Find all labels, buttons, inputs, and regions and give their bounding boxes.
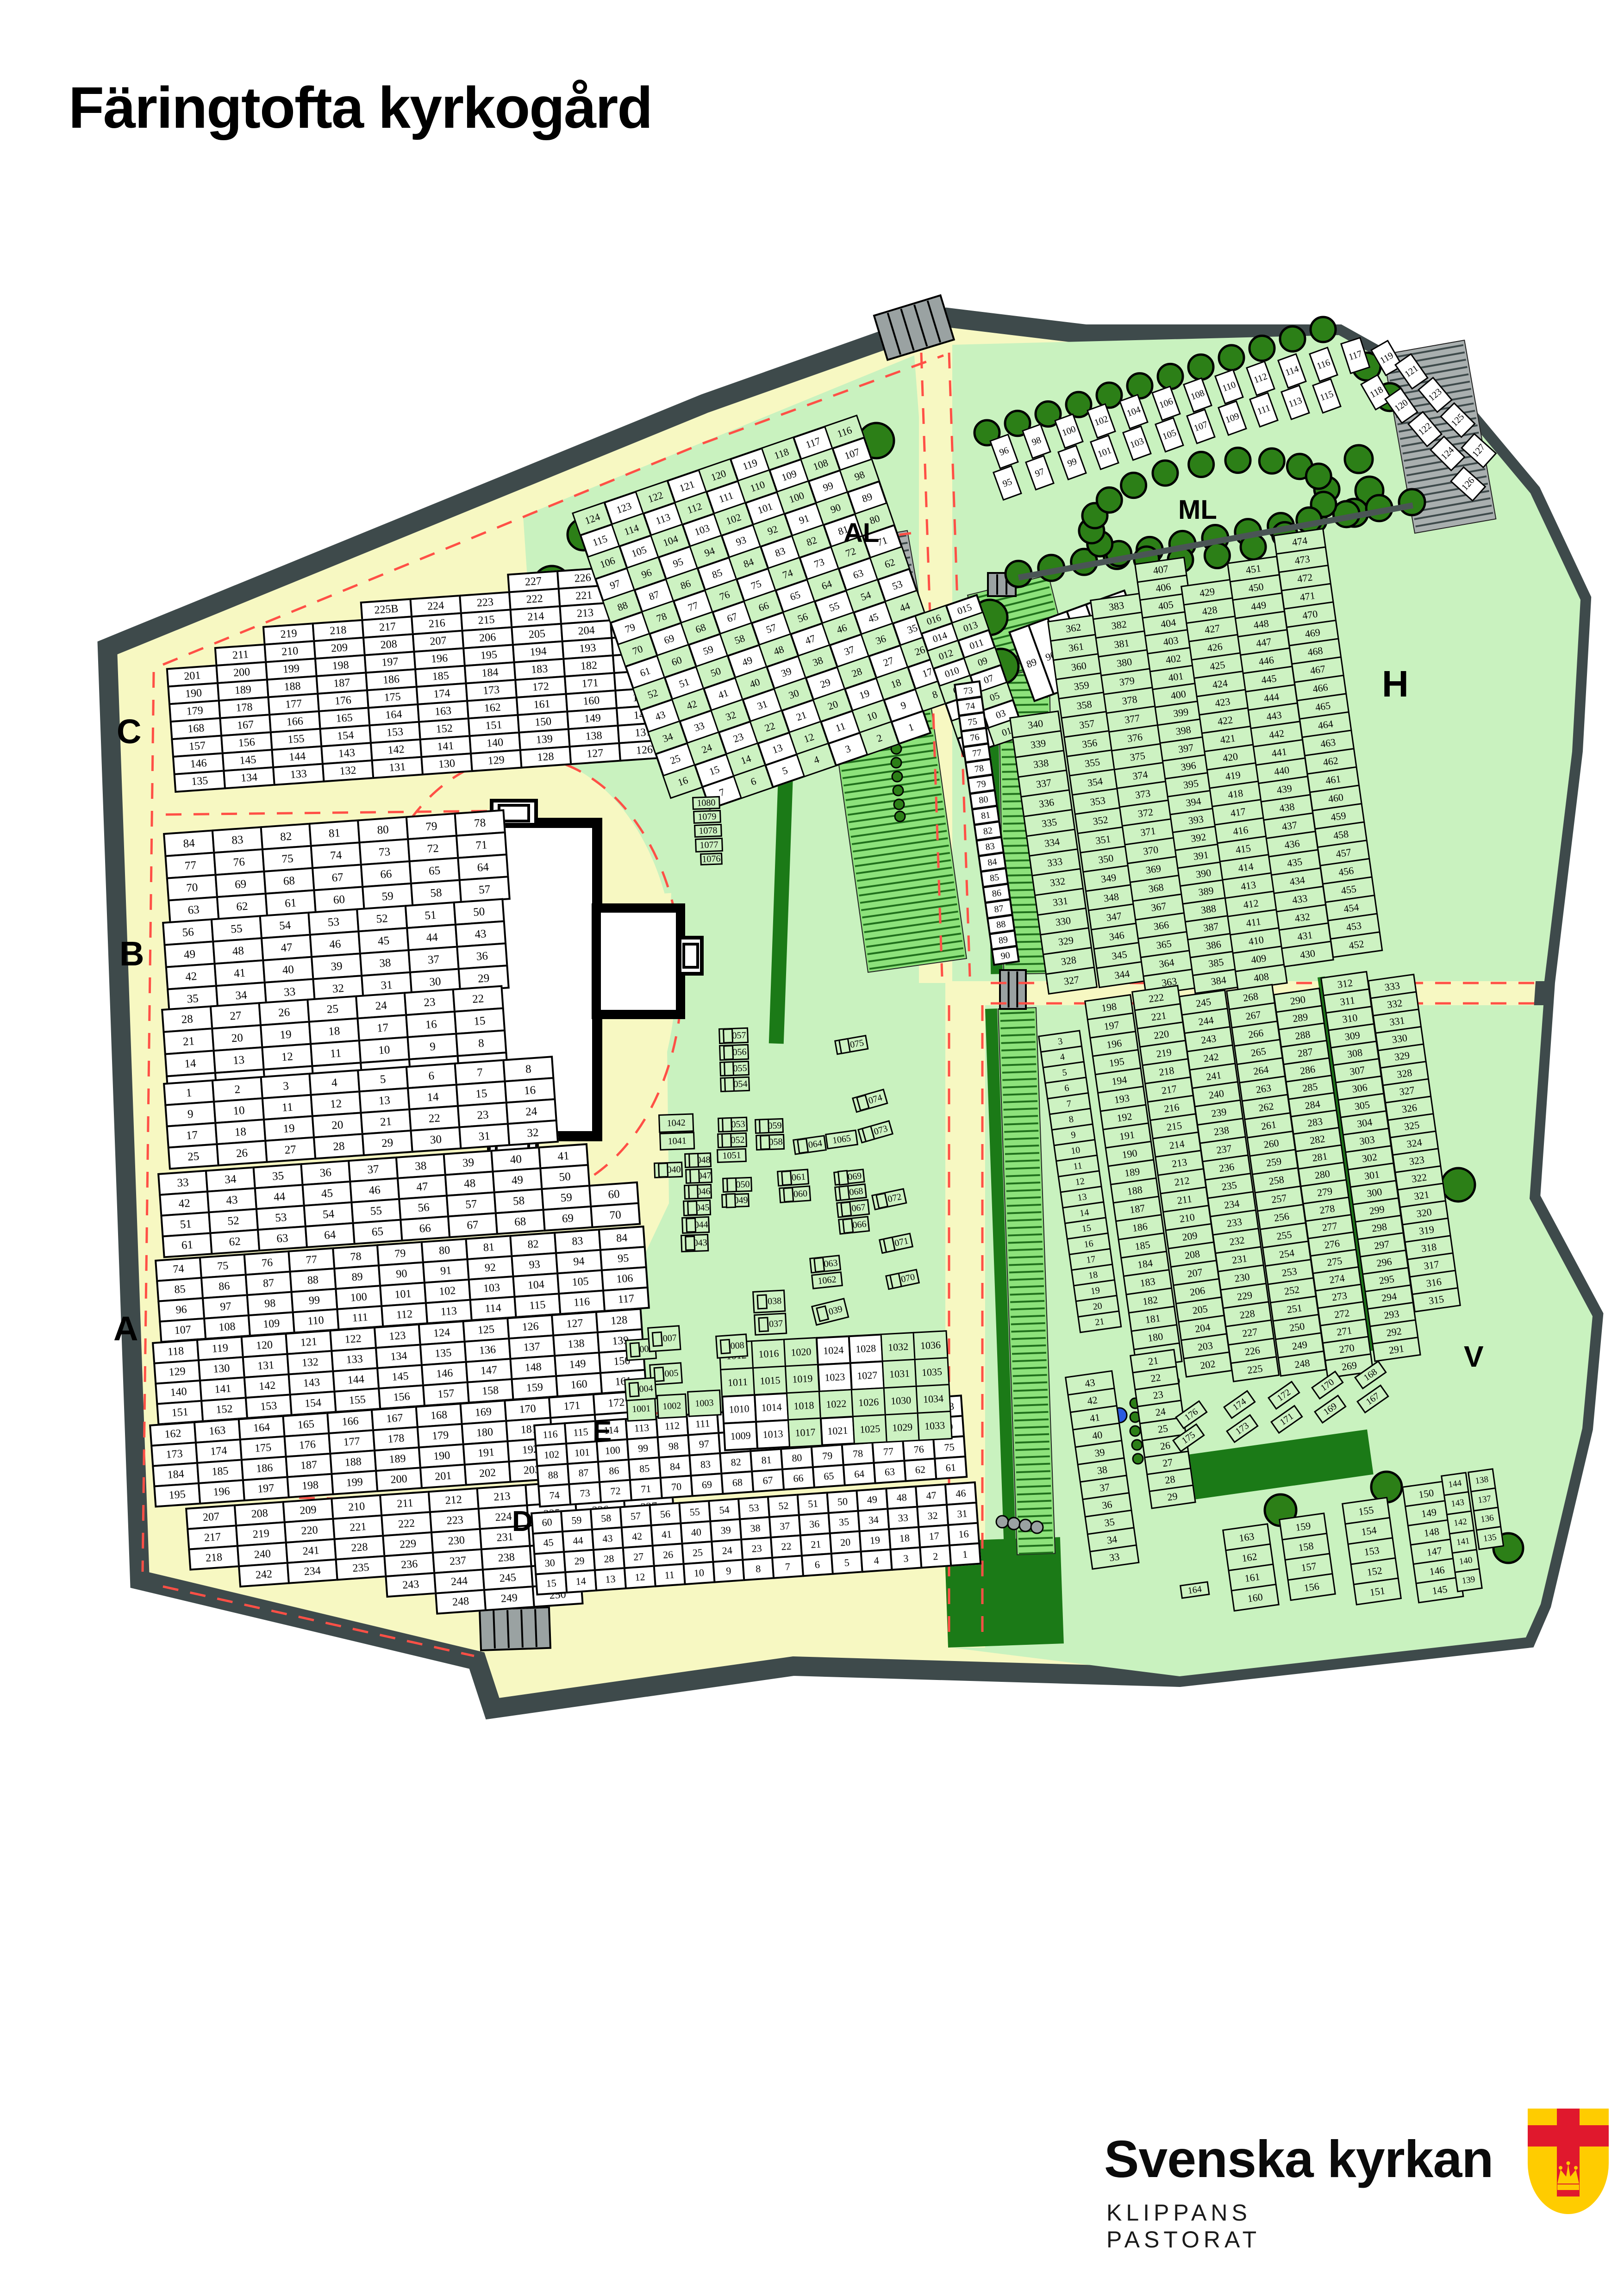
plot-cell: 113 bbox=[1280, 385, 1310, 420]
plot-cell: 108 bbox=[1183, 377, 1212, 413]
plot-cell: 1044 bbox=[681, 1216, 710, 1234]
section-label-ml: ML bbox=[1178, 494, 1217, 525]
grave-marker bbox=[685, 1236, 695, 1251]
plot-cell: 1069 bbox=[833, 1169, 865, 1186]
plot-cell: 1037 bbox=[754, 1313, 787, 1336]
plot-cell: 235 bbox=[335, 1555, 387, 1580]
plot-cell: 103 bbox=[1122, 425, 1152, 461]
plot-cell: 64 bbox=[843, 1462, 876, 1487]
plot-cell: 127 bbox=[568, 742, 621, 765]
plot-cell: 1002 bbox=[656, 1394, 687, 1419]
plot-cell: 1038 bbox=[752, 1289, 786, 1313]
plot-cell: 124 bbox=[1430, 436, 1466, 472]
plot-cell: 1009 bbox=[723, 1421, 758, 1451]
grave-marker bbox=[688, 1184, 699, 1200]
plot-cell: 1014 bbox=[754, 1392, 789, 1423]
plot-cell: 1059 bbox=[755, 1118, 784, 1134]
plot-cell: 1039 bbox=[811, 1298, 849, 1326]
plot-cell: 1074 bbox=[852, 1089, 888, 1113]
plot-cell: 1041 bbox=[659, 1132, 695, 1151]
plot-cell: 133 bbox=[272, 763, 325, 786]
plot-cell: 195 bbox=[153, 1482, 201, 1508]
plot-cell: 1057 bbox=[718, 1027, 749, 1044]
plot-cell: 67 bbox=[751, 1468, 785, 1493]
plot-cell: 117 bbox=[1340, 337, 1370, 374]
svenska-kyrkan-shield-icon bbox=[1528, 2109, 1609, 2214]
plot-cell: 102 bbox=[1087, 403, 1116, 439]
plot-cell: 107 bbox=[1186, 409, 1216, 444]
plot-cell: 1073 bbox=[857, 1120, 893, 1144]
plot-cell: 1080 bbox=[692, 796, 720, 810]
plot-cell: 1028 bbox=[848, 1333, 884, 1364]
plot-cell: 1013 bbox=[755, 1419, 791, 1450]
grave-marker bbox=[889, 1273, 902, 1289]
plot-cell: 61 bbox=[934, 1456, 968, 1480]
grave-marker bbox=[840, 1201, 852, 1217]
section-label-e: E bbox=[593, 1415, 612, 1448]
plot-cell: 1034 bbox=[915, 1384, 951, 1414]
plot-cell: 70 bbox=[590, 1202, 641, 1228]
plot-cell: 202 bbox=[464, 1461, 512, 1486]
plot-cell: 7 bbox=[771, 1555, 804, 1579]
grave-marker bbox=[721, 1133, 732, 1148]
plot-cell: 1050 bbox=[722, 1177, 752, 1193]
plot-cell: 1078 bbox=[694, 824, 722, 838]
plot-cell: 64 bbox=[305, 1222, 356, 1248]
grave-marker bbox=[724, 1061, 734, 1076]
plot-cell: 1040 bbox=[654, 1162, 683, 1178]
plot-cell: 248 bbox=[435, 1589, 487, 1614]
plot-cell: 117 bbox=[602, 1287, 650, 1312]
grave-marker bbox=[783, 1187, 794, 1202]
plot-cell: 1022 bbox=[818, 1389, 854, 1419]
grave-marker bbox=[687, 1201, 698, 1216]
plot-cell: 1048 bbox=[684, 1152, 712, 1168]
plot-cell: 1030 bbox=[883, 1386, 919, 1416]
plot-cell: 115 bbox=[1312, 378, 1342, 414]
plot-cell: 131 bbox=[371, 756, 424, 779]
section-label-c: C bbox=[117, 712, 141, 751]
plot-cell: 6 bbox=[801, 1553, 834, 1577]
plot-cell: 1007 bbox=[647, 1325, 681, 1352]
grave-marker bbox=[658, 1163, 668, 1178]
plot-cell: 1064 bbox=[793, 1135, 827, 1155]
plot-cell: 9 bbox=[712, 1559, 745, 1583]
plot-cell: 61 bbox=[162, 1232, 212, 1258]
plot-cell: 1052 bbox=[717, 1132, 747, 1148]
grave-marker bbox=[629, 1342, 640, 1357]
grave-marker bbox=[838, 1185, 850, 1201]
plot-cell: 29 bbox=[362, 1130, 413, 1156]
plot-cell: 97 bbox=[1025, 455, 1055, 491]
plot-cell: 1010 bbox=[721, 1394, 757, 1425]
grave-marker bbox=[720, 1339, 731, 1354]
plot-cell: 127 bbox=[1461, 433, 1497, 468]
plot-cell: 111 bbox=[1249, 392, 1279, 428]
grave-marker bbox=[781, 1170, 792, 1186]
grave-marker bbox=[722, 1117, 732, 1132]
plot-cell: 114 bbox=[1277, 353, 1307, 389]
plot-cell: 104 bbox=[1119, 394, 1149, 429]
grave-marker bbox=[724, 1077, 735, 1092]
plot-cell: 15 bbox=[535, 1571, 568, 1596]
plot-cell: 1068 bbox=[834, 1183, 867, 1201]
grave-marker bbox=[813, 1257, 825, 1273]
plot-cell: 65 bbox=[812, 1464, 846, 1488]
plot-cell: 129 bbox=[470, 749, 523, 772]
plot-cell: 1025 bbox=[852, 1414, 888, 1444]
plot-cell: 218 bbox=[188, 1545, 240, 1570]
plot-cell: 10 bbox=[682, 1561, 715, 1586]
plot-cell: 69 bbox=[690, 1473, 724, 1497]
plot-cell: 98 bbox=[1022, 423, 1051, 459]
plot-cell: 11 bbox=[653, 1563, 686, 1587]
plot-cell: 1076 bbox=[700, 852, 723, 865]
plot-cell: 27 bbox=[264, 1136, 316, 1163]
plot-cell: 1021 bbox=[820, 1416, 856, 1446]
plot-cell: 67 bbox=[447, 1212, 498, 1238]
plot-cell: 125 bbox=[1440, 402, 1476, 438]
plot-cell: 135 bbox=[1476, 1526, 1505, 1550]
plot-cell: 1053 bbox=[718, 1117, 748, 1132]
plot-cell: 13 bbox=[594, 1567, 627, 1592]
grave-marker bbox=[816, 1305, 829, 1322]
plot-cell: 1035 bbox=[914, 1357, 949, 1388]
grave-marker bbox=[723, 1028, 733, 1044]
plot-cell: 1062 bbox=[811, 1271, 843, 1289]
logo-subtitle: KLIPPANS PASTORAT bbox=[1106, 2199, 1261, 2253]
grave-marker bbox=[686, 1218, 696, 1233]
plot-cell: 101 bbox=[1090, 435, 1119, 470]
plot-cell: 1033 bbox=[917, 1411, 953, 1441]
plot-cell: 1027 bbox=[849, 1360, 885, 1391]
plot-cell: 109 bbox=[1218, 400, 1247, 436]
plot-cell: 1056 bbox=[719, 1044, 749, 1061]
plot-cell: 99 bbox=[1057, 445, 1087, 480]
grave-marker bbox=[838, 1038, 851, 1054]
grave-marker bbox=[759, 1119, 769, 1134]
plot-cell: 1065 bbox=[825, 1130, 858, 1150]
plot-cell: 12 bbox=[624, 1565, 656, 1590]
plot-cell: 63 bbox=[873, 1460, 906, 1484]
plot-cell: 68 bbox=[495, 1209, 546, 1235]
grave-marker bbox=[862, 1125, 875, 1142]
grave-marker bbox=[758, 1317, 769, 1332]
plot-cell: 198 bbox=[287, 1473, 334, 1499]
plot-cell: 68 bbox=[720, 1470, 754, 1495]
plot-cell: 132 bbox=[322, 759, 375, 783]
plot-cell: 1026 bbox=[851, 1387, 887, 1418]
plot-cell: 70 bbox=[660, 1475, 693, 1499]
grave-marker bbox=[842, 1218, 854, 1234]
grave-marker bbox=[856, 1094, 870, 1111]
logo-name: Svenska kyrkan bbox=[1104, 2129, 1514, 2189]
section-label-d: D bbox=[512, 1505, 533, 1538]
plot-cell: 1061 bbox=[777, 1169, 809, 1187]
plot-cell: 74 bbox=[537, 1483, 571, 1508]
plot-cell: 1079 bbox=[693, 810, 721, 824]
plot-cell: 1071 bbox=[879, 1232, 913, 1254]
section-label-al: AL bbox=[843, 517, 879, 548]
plot-cell: 135 bbox=[174, 770, 226, 793]
plot-cell: 242 bbox=[238, 1562, 290, 1587]
plot-cell: 1067 bbox=[836, 1199, 870, 1218]
plot-cell: 1015 bbox=[752, 1365, 788, 1396]
plot-cell: 201 bbox=[419, 1464, 467, 1489]
plot-cell: 234 bbox=[287, 1558, 338, 1584]
plot-cell: 164 bbox=[1180, 1581, 1210, 1599]
plot-cell: 134 bbox=[223, 766, 275, 790]
plot-cell: 167 bbox=[1356, 1384, 1389, 1413]
plot-cell: 1063 bbox=[809, 1255, 841, 1274]
grave-marker bbox=[629, 1382, 640, 1397]
plot-cell: 66 bbox=[781, 1466, 815, 1491]
plot-cell: 73 bbox=[568, 1481, 602, 1506]
grave-marker bbox=[756, 1294, 768, 1309]
plot-cell: 126 bbox=[1450, 466, 1486, 502]
plot-cell: 1003 bbox=[687, 1389, 722, 1417]
plot-cell: 14 bbox=[564, 1569, 597, 1593]
plot-cell: 4 bbox=[860, 1549, 893, 1573]
plot-cell: 1043 bbox=[681, 1234, 709, 1252]
plot-cell: 197 bbox=[242, 1476, 290, 1501]
grave-marker bbox=[726, 1177, 737, 1193]
plot-cell: 1051 bbox=[717, 1148, 747, 1163]
plot-cell: 5 bbox=[831, 1550, 863, 1575]
plot-cell: 96 bbox=[989, 434, 1019, 469]
plot-cell: 1072 bbox=[871, 1188, 907, 1210]
plot-cell: 249 bbox=[483, 1586, 535, 1611]
plot-cell: 26 bbox=[216, 1140, 268, 1166]
plot-cell: 1018 bbox=[786, 1391, 822, 1421]
plot-cell: 90 bbox=[991, 945, 1020, 966]
plot-cell: 1055 bbox=[719, 1061, 750, 1076]
plot-cell: 1070 bbox=[885, 1269, 920, 1290]
section-label-h: H bbox=[1382, 663, 1409, 705]
plot-cell: 1 bbox=[949, 1542, 981, 1567]
plot-cell: 72 bbox=[599, 1479, 632, 1504]
plot-cell: 1024 bbox=[816, 1335, 851, 1366]
plot-cell: 200 bbox=[375, 1467, 423, 1492]
plot-cell: 1032 bbox=[881, 1332, 916, 1363]
plot-cell: 1042 bbox=[658, 1113, 694, 1133]
section-label-a: A bbox=[113, 1309, 138, 1348]
plot-cell: 128 bbox=[519, 746, 572, 769]
plot-cell: 25 bbox=[168, 1143, 219, 1170]
plot-cell: 1031 bbox=[882, 1359, 918, 1389]
plot-cell: 95 bbox=[993, 465, 1022, 501]
plot-cell: 69 bbox=[542, 1206, 593, 1232]
plot-cell: 63 bbox=[257, 1226, 308, 1251]
plot-cell: 30 bbox=[410, 1126, 462, 1152]
plot-cell: 1047 bbox=[685, 1168, 712, 1184]
plot-cell: 1020 bbox=[783, 1337, 819, 1368]
plot-cell: 32 bbox=[507, 1120, 559, 1146]
grave-marker bbox=[883, 1237, 896, 1253]
plot-cell: 112 bbox=[1246, 361, 1275, 396]
grave-marker bbox=[797, 1138, 809, 1154]
plot-cell: 62 bbox=[903, 1458, 937, 1482]
section-label-v: V bbox=[1464, 1339, 1484, 1374]
plot-cell: 1011 bbox=[720, 1367, 756, 1398]
plot-cell: 66 bbox=[400, 1215, 450, 1241]
plot-cell: 243 bbox=[385, 1572, 437, 1598]
plot-cell: 1017 bbox=[787, 1418, 823, 1448]
plot-cell: 1046 bbox=[684, 1184, 712, 1200]
plot-cell: 1008 bbox=[715, 1333, 748, 1359]
grave-marker bbox=[723, 1045, 734, 1060]
grave-marker bbox=[652, 1332, 663, 1347]
plot-cell: 1019 bbox=[785, 1364, 820, 1394]
section-label-b: B bbox=[119, 934, 144, 973]
plot-cell: 116 bbox=[1309, 347, 1338, 382]
plot-cell: 62 bbox=[209, 1229, 260, 1255]
plot-cell: 1054 bbox=[720, 1076, 750, 1092]
grave-marker bbox=[837, 1170, 849, 1186]
plot-cell: 1077 bbox=[695, 838, 723, 852]
plot-cell: 2 bbox=[919, 1544, 952, 1569]
plot-cell: 1060 bbox=[779, 1185, 811, 1203]
plot-cell: 31 bbox=[458, 1123, 510, 1149]
plot-cell: 110 bbox=[1214, 369, 1244, 404]
plot-cell: 3 bbox=[889, 1546, 922, 1571]
plot-cell: 1045 bbox=[683, 1200, 711, 1216]
grave-marker bbox=[689, 1169, 700, 1184]
plot-cell: 8 bbox=[742, 1557, 775, 1581]
plot-cell: 1016 bbox=[751, 1338, 787, 1369]
plot-cell: 65 bbox=[352, 1219, 403, 1244]
plot-cell: 1058 bbox=[756, 1134, 785, 1151]
plot-cell: 1049 bbox=[721, 1193, 750, 1208]
plot-cell: 199 bbox=[331, 1470, 378, 1495]
plot-cell: 1075 bbox=[834, 1035, 868, 1055]
grave-marker bbox=[760, 1135, 770, 1150]
plot-cell: 71 bbox=[629, 1477, 663, 1501]
plot-grids: 227226225225B224223222221220219218217216… bbox=[0, 0, 1624, 2296]
plot-cell: 1066 bbox=[838, 1216, 870, 1235]
plot-cell: 130 bbox=[420, 753, 473, 776]
grave-marker bbox=[688, 1153, 699, 1168]
plot-cell: 1004 bbox=[624, 1377, 657, 1401]
plot-cell: 196 bbox=[198, 1479, 245, 1505]
plot-cell: 1036 bbox=[912, 1330, 948, 1361]
plot-cell: 106 bbox=[1151, 386, 1181, 421]
plot-cell: 139 bbox=[1454, 1568, 1483, 1592]
plot-cell: 28 bbox=[313, 1133, 365, 1159]
plot-cell: 100 bbox=[1054, 413, 1084, 449]
plot-cell: 105 bbox=[1155, 417, 1184, 453]
page: Färingtofta kyrkogård bbox=[0, 0, 1624, 2296]
grave-marker bbox=[725, 1193, 736, 1208]
grave-marker bbox=[875, 1193, 888, 1209]
plot-cell: 1029 bbox=[885, 1412, 920, 1443]
plot-cell: 1023 bbox=[817, 1362, 853, 1393]
